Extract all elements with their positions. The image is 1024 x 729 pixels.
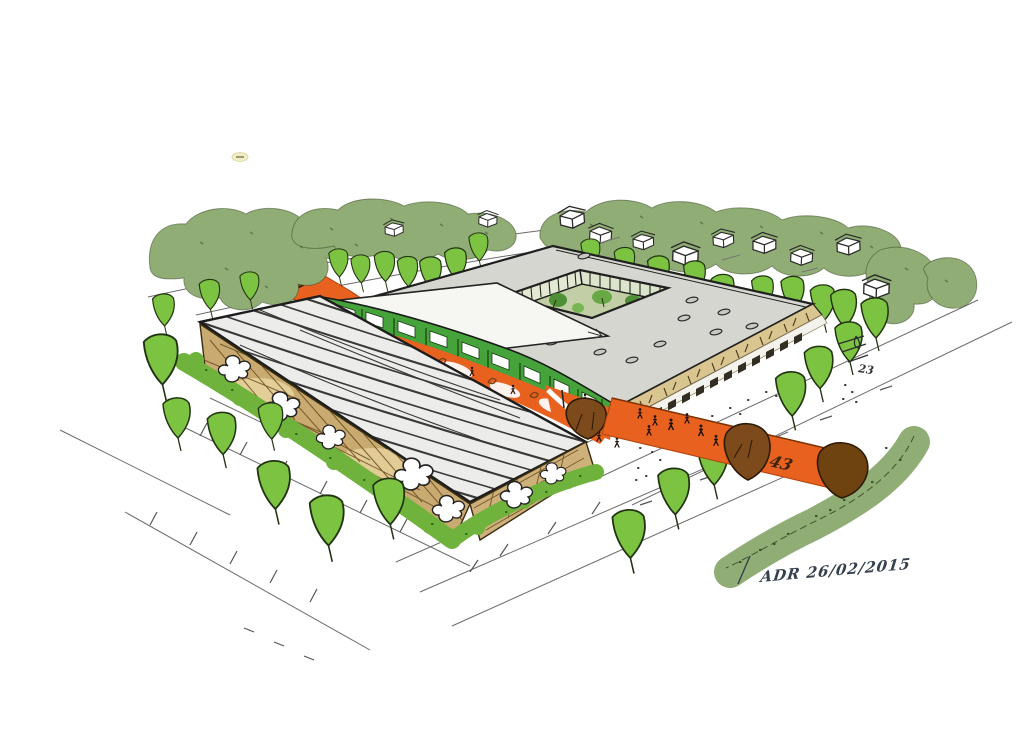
paper-fleck (232, 153, 248, 162)
sketch-canvas: 43 23 ADR 26/02/2015 (0, 0, 1024, 729)
architectural-sketch: 43 23 ADR 26/02/2015 (0, 0, 1024, 729)
road-note-label: 23 (857, 362, 875, 377)
signature-text: ADR 26/02/2015 (758, 555, 912, 586)
